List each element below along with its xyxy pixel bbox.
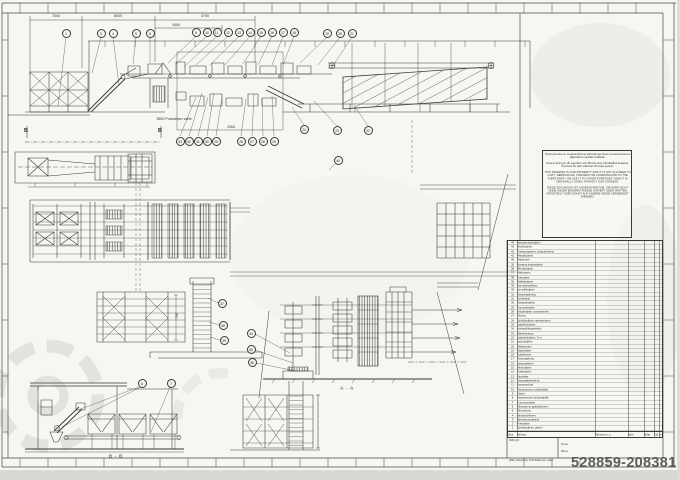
part-name-cell: Syöttökuljetin varusteineen [517, 319, 662, 322]
part-name-cell: Kasauskuljetin [517, 301, 662, 304]
balloon-callout: 27 [248, 137, 257, 146]
balloon-callout: 36 [248, 358, 257, 367]
part-name-cell: Annostelulaite [517, 306, 662, 309]
balloon-callout: 20 [336, 29, 345, 38]
muut-label: Muut [561, 450, 568, 453]
footer-note: (RE) Wood Oy Puhdistamon valm. [509, 459, 554, 462]
part-number-cell: 8 [508, 396, 517, 399]
part-name-cell: Lastukuljetin [517, 340, 662, 343]
part-name-cell: Tasausjalusta [517, 357, 662, 360]
part-name-cell: Lajittelukuljetin, 3 m [517, 336, 662, 339]
part-name-cell: Hydrauliikkayksikkö [517, 327, 662, 330]
table-column-divider [628, 241, 629, 437]
part-number-cell: 36 [508, 276, 517, 279]
balloon-callout: 24 [300, 125, 309, 134]
part-number-cell: 42 [508, 250, 517, 253]
part-number-cell: 12 [508, 379, 517, 382]
part-name-cell: Syöttökuljetin, jakso I [517, 426, 662, 429]
balloon-callout: 18 [290, 28, 299, 37]
part-name-cell: Kippilaite [517, 375, 662, 378]
part-name-cell: Kiramo [517, 314, 662, 317]
legal-fi: Tämä piirustus on omaisuuttamme eikä sit… [543, 153, 632, 159]
part-number-cell: 4 [508, 414, 517, 417]
legal-notice-text: Tämä piirustus on omaisuuttamme eikä sit… [543, 151, 632, 199]
kuva-label: Kuva [561, 443, 568, 446]
part-name-cell: Lajittelukuljetin [517, 323, 662, 326]
table-column-divider [654, 241, 655, 437]
part-number-cell: 33 [508, 288, 517, 291]
balloon-callout: 10 [203, 28, 212, 37]
part-name-cell: Siirtovaunu [517, 409, 662, 412]
part-name-cell: Vastaanottokuljetin [517, 241, 662, 244]
part-name-cell: Nostava ketjukuljetin [517, 263, 662, 266]
annotation-label: 4700 [201, 14, 209, 18]
balloon-callout: 23 [333, 126, 342, 135]
part-name-cell: Kolakuljetin [517, 370, 662, 373]
part-name-cell: Syöttölaite [517, 297, 662, 300]
table-column-divider [517, 241, 518, 437]
balloon-callout: 5 [132, 29, 141, 38]
part-number-cell: 40 [508, 258, 517, 261]
balloon-callout: 32 [185, 137, 194, 146]
part-number-cell: 24 [508, 327, 517, 330]
balloon-callout: 31 [194, 137, 203, 146]
balloon-callout: 12 [224, 28, 233, 37]
part-number-cell: 17 [508, 357, 517, 360]
nim-ryh-label: NIM ryh [509, 439, 519, 442]
balloon-callout: 14 [246, 28, 255, 37]
part-name-cell: Lamellikuljetin [517, 288, 662, 291]
part-name-cell: Hihnakuljetin [517, 267, 662, 270]
part-number-cell: 28 [508, 310, 517, 313]
annotation-label: 3500 Purkaimen varte [156, 117, 191, 121]
part-number-cell: 19 [508, 349, 517, 352]
part-number-cell: 27 [508, 314, 517, 317]
annotation-label: 3454 [172, 23, 180, 27]
balloon-callout: 16 [268, 28, 277, 37]
parts-rows: 44 Vastaanottokuljetin 43 Nivelkuljetin … [508, 241, 662, 431]
annotation-label: 750 [175, 313, 179, 319]
balloon-callout: 19 [323, 29, 332, 38]
balloon-callout: 33 [176, 137, 185, 146]
annotation-label: 7004 [52, 14, 60, 18]
part-number-cell: 44 [508, 241, 517, 244]
part-number-cell: 7 [508, 401, 517, 404]
balloon-callout: 29 [212, 137, 221, 146]
balloon-callout: 39 [220, 336, 229, 345]
lower-plan-view [230, 381, 320, 450]
listing-id-watermark: 528859-20838177 [571, 455, 680, 471]
table-header-row: Osa Nimitys Piirustus n:o Aine Mitat Kpl… [508, 431, 662, 439]
part-name-cell: Tasausvaunu siirtoradalla [517, 396, 662, 399]
part-name-cell: Palkkikuljetin [517, 280, 662, 283]
part-name-cell: Kiskot [517, 392, 662, 395]
balloon-callout: 37 [218, 299, 227, 308]
part-name-cell: Purkauslaitteen ohjauskeskus [517, 250, 662, 253]
balloon-callout: 7 [167, 379, 176, 388]
page-edge-bottom [0, 470, 680, 480]
part-number-cell: 38 [508, 267, 517, 270]
part-number-cell: 21 [508, 340, 517, 343]
legal-en: THIS DRAWING IS OUR PROPERTY AND IT IS N… [543, 171, 632, 183]
balloon-callout: 17 [279, 28, 288, 37]
legal-notice-box: Tämä piirustus on omaisuuttamme eikä sit… [542, 150, 632, 238]
balloon-callout: 26 [259, 137, 268, 146]
part-name-cell: Ketjukuljetin varusteineen [517, 310, 662, 313]
part-name-cell: Purkulaite [517, 276, 662, 279]
balloon-callout: 38 [219, 321, 228, 330]
header-nimitys: Nimitys [517, 433, 595, 437]
part-number-cell: 9 [508, 392, 517, 395]
part-name-cell: Tasauslaitteisto [517, 293, 662, 296]
header-osa: Osa [508, 433, 517, 437]
balloon-callout: 25 [270, 137, 279, 146]
balloon-callout: 13 [235, 28, 244, 37]
part-name-cell: Tasausvaunu rullaradalla [517, 388, 662, 391]
balloon-callout: 8 [146, 29, 155, 38]
part-number-cell: 23 [508, 332, 517, 335]
legal-de: DIESE ZEICHNUNG IST UNSER EIGENTUM. SIE … [543, 187, 632, 199]
part-number-cell: 34 [508, 284, 517, 287]
annotation-label: A - A [340, 385, 354, 391]
header-mitat: Mitat [644, 433, 654, 437]
part-name-cell: Välikuljetin [517, 271, 662, 274]
legal-sv: Denna ritning är vår egendom och får ick… [543, 162, 632, 168]
table-column-divider [659, 241, 660, 437]
annotation-label: B [24, 127, 28, 133]
balloon-callout: 34 [247, 329, 256, 338]
balloon-callout: 21 [348, 29, 357, 38]
part-name-cell: Lastauslaituri [517, 362, 662, 365]
part-name-cell: Paluukuljetin [517, 254, 662, 257]
part-name-cell: Varastotelineet [517, 414, 662, 417]
part-name-cell: Välitasanne [517, 345, 662, 348]
balloon-callout: 40 [334, 156, 343, 165]
balloon-callout: 35 [247, 345, 256, 354]
part-number-cell: 3 [508, 418, 517, 421]
part-number-cell: 10 [508, 388, 517, 391]
part-number-cell: 43 [508, 245, 517, 248]
header-aine: Aine [628, 433, 644, 437]
part-name-cell: Paperointi [517, 258, 662, 261]
annotation-label: 1064 [227, 125, 235, 129]
header-piirustus: Piirustus n:o [595, 433, 628, 437]
part-number-cell: 11 [508, 383, 517, 386]
part-number-cell: 32 [508, 293, 517, 296]
part-number-cell: 20 [508, 345, 517, 348]
part-number-cell: 6 [508, 405, 517, 408]
part-number-cell: 25 [508, 323, 517, 326]
part-number-cell: 26 [508, 319, 517, 322]
part-name-cell: Sähkökeskus [517, 332, 662, 335]
part-name-cell: Kääntölaite [517, 349, 662, 352]
part-name-cell: Tasausjärjestelmä [517, 379, 662, 382]
part-number-cell: 37 [508, 271, 517, 274]
table-column-divider [644, 241, 645, 437]
part-number-cell: 14 [508, 370, 517, 373]
part-number-cell: 5 [508, 409, 517, 412]
bb-section-view [25, 383, 184, 452]
part-name-cell: Purkulaite [517, 422, 662, 425]
part-number-cell: 2 [508, 422, 517, 425]
balloon-callout: 22 [364, 126, 373, 135]
part-number-cell: 1 [508, 426, 517, 429]
part-name-cell: Kuormauslaite [517, 401, 662, 404]
table-column-divider [595, 241, 596, 437]
balloon-callout: 3 [97, 29, 106, 38]
part-number-cell: 22 [508, 336, 517, 339]
balloon-callout: 15 [257, 28, 266, 37]
gear-watermark [0, 346, 228, 446]
part-number-cell: 35 [508, 280, 517, 283]
drawing-sheet: Tämä piirustus on omaisuuttamme eikä sit… [0, 0, 680, 480]
part-number-cell: 15 [508, 366, 517, 369]
part-number-cell: 13 [508, 375, 517, 378]
part-number-cell: 41 [508, 254, 517, 257]
stacked-plan-view [97, 278, 262, 358]
balloon-callout: 6 [138, 379, 147, 388]
part-number-cell: 30 [508, 301, 517, 304]
part-number-cell: 29 [508, 306, 517, 309]
balloon-callout: 4 [109, 29, 118, 38]
annotation-label: B [158, 127, 162, 133]
part-name-cell: Kasauspöytä [517, 383, 662, 386]
parts-list-table: 44 Vastaanottokuljetin 43 Nivelkuljetin … [507, 240, 663, 438]
part-name-cell: Tukitelineet [517, 353, 662, 356]
balloon-callout: 1 [62, 29, 71, 38]
part-number-cell: 18 [508, 353, 517, 356]
part-number-cell: 31 [508, 297, 517, 300]
part-name-cell: Kannatinpalkisto [517, 284, 662, 287]
annotation-label: B - B [109, 453, 123, 459]
part-name-cell: Vastaanottotaskut [517, 418, 662, 421]
part-name-cell: Siirtovaunu ajolaitteineen [517, 405, 662, 408]
balloon-callout: 30 [203, 137, 212, 146]
part-number-cell: 39 [508, 263, 517, 266]
balloon-callout: 11 [213, 28, 222, 37]
part-number-cell: 16 [508, 362, 517, 365]
annotation-label: 8000 [114, 14, 122, 18]
part-name-cell: Vinokuljetin [517, 366, 662, 369]
balloon-callout: 9 [192, 28, 201, 37]
balloon-callout: 28 [237, 137, 246, 146]
part-name-cell: Nivelkuljetin [517, 245, 662, 248]
